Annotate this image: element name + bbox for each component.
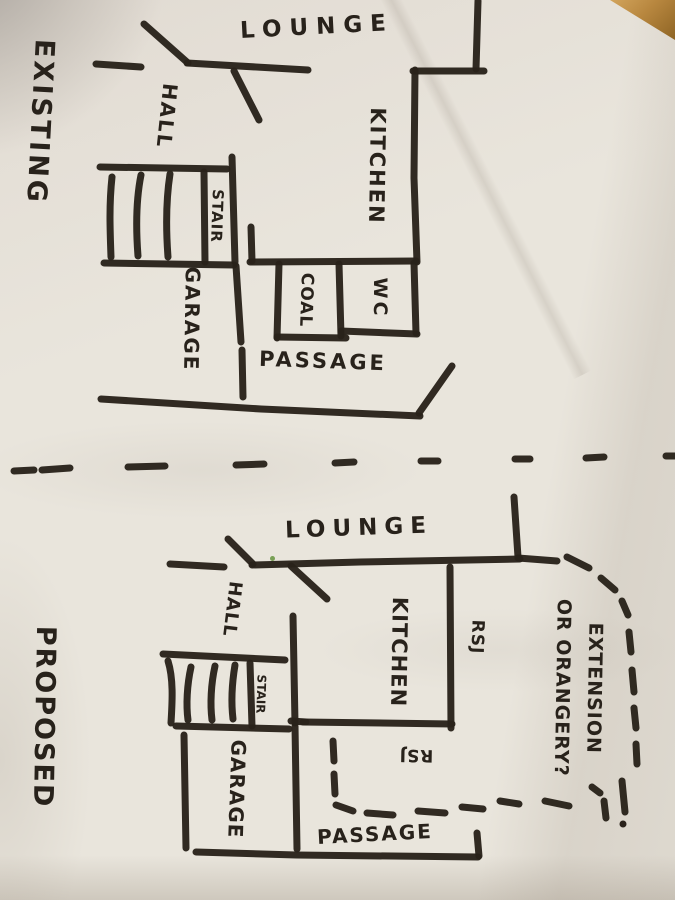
- stair-tread: [187, 667, 191, 720]
- wall-lounge-right: [476, 1, 478, 69]
- wall-hall-kitchen-divider: [293, 616, 295, 723]
- extension-boundary-left-bottom: [333, 741, 569, 815]
- rsj-beam-vertical: [450, 567, 451, 728]
- wall-stairs-right: [232, 157, 235, 262]
- wall-stairs-bottom: [176, 726, 289, 729]
- existing-stair-treads: [110, 174, 170, 257]
- photo-of-floorplan-sketch: EXISTING LOUNGE HALL KITCHEN STAIR GARAG…: [0, 0, 675, 900]
- rsj-beam-left-tail: [291, 721, 306, 722]
- wall-stairs-top: [100, 167, 227, 169]
- door-swing-line: [144, 24, 188, 63]
- extension-boundary-corner-marks: [592, 781, 625, 818]
- extension-boundary-dot: [620, 821, 627, 828]
- rsj-annotation-bottom: RSJ: [398, 745, 433, 766]
- existing-garage-label: GARAGE: [179, 266, 205, 371]
- wall-passage-end-diagonal: [419, 366, 452, 413]
- extension-annotation-line1: EXTENSION: [576, 599, 611, 777]
- existing-passage-label: PASSAGE: [259, 347, 388, 375]
- rsj-annotation-right: RSJ: [466, 619, 487, 654]
- wall-kitchen-bottom: [250, 261, 416, 262]
- proposed-lounge-label: LOUNGE: [285, 512, 434, 543]
- existing-coal-label: COAL: [295, 272, 317, 327]
- wall-wc-bottom: [341, 331, 417, 334]
- wall-wc-right: [414, 263, 416, 333]
- wall-passage-bottom: [101, 399, 420, 416]
- proposed-stair-label: STAIR: [253, 674, 268, 713]
- door-swing-line: [234, 71, 259, 120]
- wall-stair-label-divider: [250, 663, 252, 726]
- proposed-garage-label: GARAGE: [223, 739, 250, 839]
- stair-tread: [232, 665, 235, 719]
- wall-kitchen-left-stub: [251, 227, 252, 261]
- wall-passage-bottom: [196, 852, 478, 857]
- wall-garage-right: [236, 266, 243, 397]
- wall-stairs-bottom: [104, 263, 234, 265]
- wall-garage-left: [184, 735, 186, 848]
- wall-hall-top: [187, 63, 308, 70]
- rsj-beam-horizontal: [303, 722, 452, 724]
- existing-kitchen-label: KITCHEN: [364, 107, 390, 225]
- wall-stairs-top: [163, 654, 285, 660]
- extension-annotation: EXTENSION OR ORANGERY?: [544, 599, 612, 778]
- existing-wc-label: WC: [369, 278, 391, 319]
- door-swing-line: [228, 539, 253, 564]
- stair-tread: [137, 175, 141, 256]
- wall-stairs-left: [168, 661, 172, 723]
- wall-hall-stub: [96, 64, 141, 67]
- stair-tread: [167, 174, 170, 257]
- wall-passage-end-stub: [477, 833, 479, 856]
- wall-stair-label-divider: [204, 172, 205, 262]
- wall-coal-left: [277, 264, 279, 338]
- wall-garage-right: [295, 726, 297, 849]
- proposed-plan-title: PROPOSED: [27, 625, 61, 808]
- wall-lounge-right: [514, 497, 518, 557]
- stair-tread: [110, 177, 112, 257]
- extension-annotation-line2: OR ORANGERY?: [544, 599, 579, 777]
- existing-stair-label: STAIR: [207, 189, 227, 243]
- proposed-stair-treads: [187, 665, 235, 720]
- stair-tread: [211, 666, 215, 720]
- wall-hall-stub: [170, 564, 224, 567]
- plan-divider-dashed-line: [14, 456, 675, 471]
- door-swing-line: [291, 566, 327, 599]
- wall-kitchen-right: [414, 70, 417, 262]
- wall-coal-wc-divider: [339, 264, 341, 336]
- proposed-kitchen-label: KITCHEN: [386, 597, 412, 708]
- wall-lounge-right-foot: [518, 558, 557, 561]
- wall-coal-bottom: [277, 337, 346, 338]
